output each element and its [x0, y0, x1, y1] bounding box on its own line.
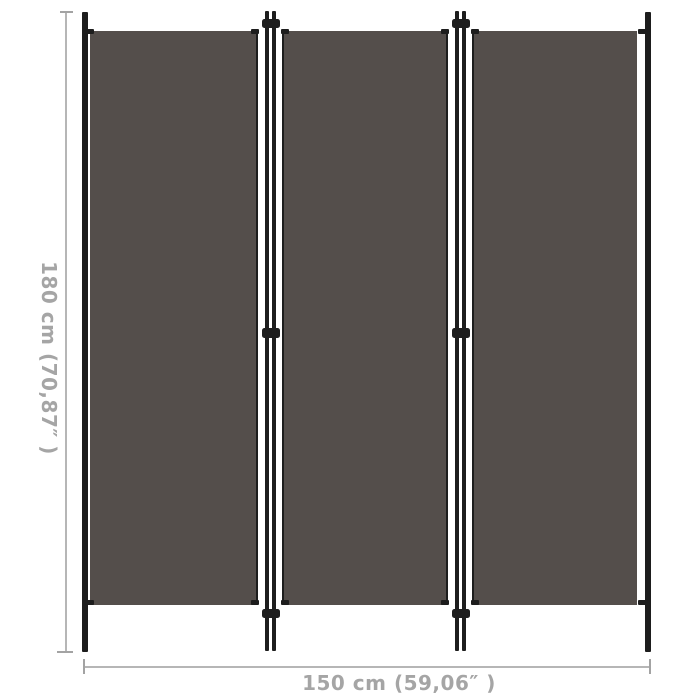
height-dimension-bottom-cap: [57, 651, 73, 653]
clamp-panel2-right-bottom: [441, 600, 449, 605]
fabric-panel-1: [90, 31, 258, 605]
width-dimension-right-cap: [649, 659, 651, 674]
height-dimension-label: 180 cm (70,87″ ): [37, 228, 61, 488]
clamp-right-pole-bottom: [638, 600, 648, 605]
hinge-junction2-bottom: [452, 609, 470, 618]
height-dimension-line: [65, 12, 67, 652]
clamp-left-pole-bottom: [85, 600, 94, 605]
hinge-junction1-middle: [262, 328, 280, 338]
product-image: 180 cm (70,87″ ) 150 cm (59,06″ ): [0, 0, 700, 700]
fabric-panel-3: [472, 31, 637, 605]
clamp-panel2-left-bottom: [281, 600, 289, 605]
clamp-panel3-left-top: [471, 29, 479, 34]
clamp-panel3-left-bottom: [471, 600, 479, 605]
hinge-junction1-top: [262, 19, 280, 28]
hinge-junction1-bottom: [262, 609, 280, 618]
clamp-panel2-left-top: [281, 29, 289, 34]
frame-pole-right: [645, 12, 651, 652]
width-dimension-line: [83, 666, 651, 668]
hinge-junction2-middle: [452, 328, 470, 338]
fabric-panel-2: [282, 31, 448, 605]
width-dimension-left-cap: [83, 659, 85, 674]
width-dimension-label: 150 cm (59,06″ ): [269, 671, 529, 695]
clamp-left-pole-top: [85, 29, 94, 34]
hinge-junction2-top: [452, 19, 470, 28]
clamp-panel2-right-top: [441, 29, 449, 34]
clamp-panel1-right-bottom: [251, 600, 259, 605]
height-dimension-top-cap: [60, 11, 73, 13]
clamp-right-pole-top: [638, 29, 648, 34]
clamp-panel1-right-top: [251, 29, 259, 34]
frame-pole-left: [82, 12, 88, 652]
